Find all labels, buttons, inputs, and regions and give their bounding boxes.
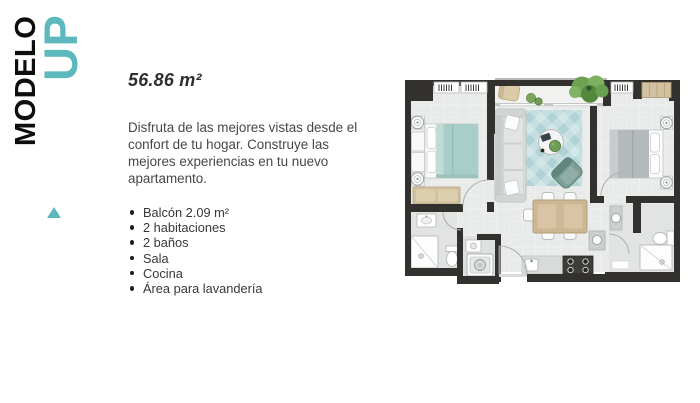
bench (413, 187, 460, 204)
description-text: Disfruta de las mejores vistas desde el … (128, 119, 368, 187)
area-title: 56.86 m² (128, 70, 390, 91)
balcony-plant-icon (535, 98, 542, 105)
wardrobe (642, 83, 671, 98)
entrance-door-leaf (499, 246, 501, 274)
bed-right (610, 130, 663, 178)
balcony-plant-icon (526, 93, 535, 102)
bullet-icon (130, 256, 134, 261)
feature-item: Cocina (128, 266, 390, 281)
bullet-icon (130, 225, 134, 230)
floorplan-image (405, 78, 680, 287)
shower (411, 236, 438, 268)
bullet-icon (130, 240, 134, 245)
sofa (495, 109, 526, 202)
feature-label: Cocina (143, 266, 183, 281)
stove (563, 256, 593, 274)
feature-label: Sala (143, 251, 169, 266)
toilet (446, 246, 458, 267)
toilet (653, 231, 674, 246)
bed-left (425, 124, 478, 178)
bullet-icon (130, 210, 134, 215)
bullet-icon (130, 271, 134, 276)
feature-item: Sala (128, 251, 390, 266)
bath-mat (612, 261, 629, 269)
feature-item: Balcón 2.09 m² (128, 205, 390, 220)
feature-label: 2 baños (143, 235, 189, 250)
feature-label: Área para lavandería (143, 281, 263, 296)
brochure-slide: MODELO UP 56.86 m² Disfruta de las mejor… (0, 0, 700, 403)
bathroom-sink (417, 214, 436, 227)
bullet-icon (130, 286, 134, 291)
dining-table (533, 200, 587, 233)
table-plant-icon (549, 140, 560, 151)
feature-item: Área para lavandería (128, 281, 390, 296)
content-block: 56.86 m² Disfruta de las mejores vistas … (128, 70, 390, 296)
coffee-table (539, 130, 564, 155)
washing-machine (467, 254, 493, 276)
feature-label: Balcón 2.09 m² (143, 205, 229, 220)
feature-label: 2 habitaciones (143, 220, 226, 235)
feature-list: Balcón 2.09 m² 2 habitaciones 2 baños Sa… (128, 205, 390, 296)
model-name: UP (33, 15, 88, 81)
triangle-marker-icon (47, 207, 61, 218)
feature-item: 2 habitaciones (128, 220, 390, 235)
feature-item: 2 baños (128, 235, 390, 250)
shower (640, 245, 672, 270)
entrance-threshold (499, 274, 527, 277)
